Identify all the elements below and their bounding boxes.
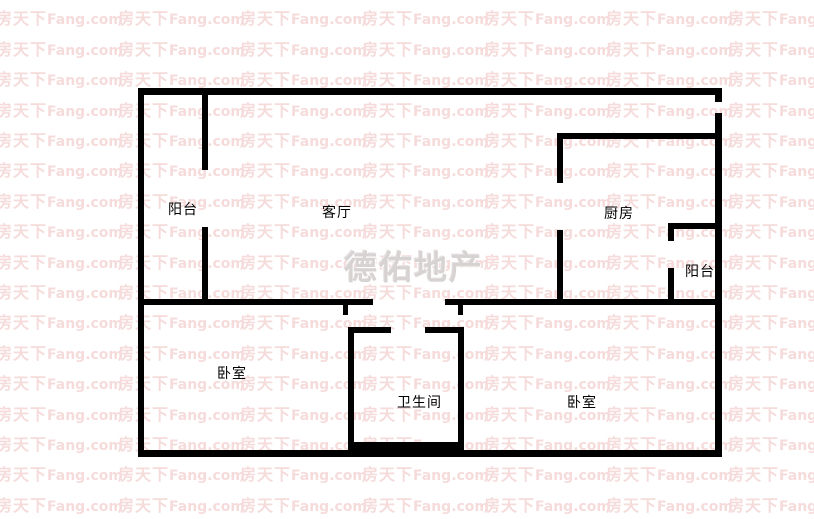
wall-middle-right (445, 299, 715, 305)
wall-balcony-right-top (668, 223, 715, 229)
watermark-text: 房天下Fang.com (118, 495, 245, 518)
watermark-text: 房天下Fang.com (728, 0, 814, 1)
watermark-text: 房天下Fang.com (484, 464, 611, 487)
watermark-text: 房天下Fang.com (606, 495, 733, 518)
watermark-text: 房天下Fang.com (0, 464, 123, 487)
watermark-text: 房天下Fang.com (728, 495, 814, 518)
watermark-text: 房天下Fang.com (728, 434, 814, 457)
watermark-text: 房天下Fang.com (0, 221, 123, 244)
door-frame-tick-right (458, 305, 463, 315)
watermark-text: 房天下Fang.com (0, 282, 123, 305)
watermark-text: 房天下Fang.com (118, 39, 245, 62)
watermark-text: 房天下Fang.com (0, 0, 123, 1)
watermark-text: 房天下Fang.com (484, 495, 611, 518)
watermark-text: 房天下Fang.com (118, 8, 245, 31)
watermark-text: 房天下Fang.com (606, 343, 733, 366)
wall-exterior-left (138, 88, 144, 457)
watermark-text: 房天下Fang.com (606, 404, 733, 427)
wall-exterior-top (138, 88, 722, 95)
watermark-text: 房天下Fang.com (240, 39, 367, 62)
door-frame-tick-left (343, 305, 348, 315)
watermark-text: 房天下Fang.com (728, 130, 814, 153)
wall-kitchen-left-lower (557, 230, 563, 305)
watermark-text: 房天下Fang.com (606, 39, 733, 62)
watermark-text: 房天下Fang.com (484, 343, 611, 366)
watermark-text: 房天下Fang.com (484, 160, 611, 183)
watermark-text: 房天下Fang.com (240, 495, 367, 518)
wall-exterior-right-upper-stub (715, 88, 722, 102)
room-label-living-room: 客厅 (322, 202, 352, 222)
watermark-text: 房天下Fang.com (728, 69, 814, 92)
watermark-text: 房天下Fang.com (362, 343, 489, 366)
watermark-text: 房天下Fang.com (0, 343, 123, 366)
watermark-text: 房天下Fang.com (362, 8, 489, 31)
room-label-kitchen: 厨房 (604, 203, 634, 223)
wall-balcony-left-divider-lower (202, 227, 208, 305)
wall-balcony-right-left-upper (668, 229, 674, 241)
wall-middle-left (144, 299, 373, 305)
watermark-text: 房天下Fang.com (240, 0, 367, 1)
watermark-text: 房天下Fang.com (606, 160, 733, 183)
watermark-text: 房天下Fang.com (728, 221, 814, 244)
watermark-text: 房天下Fang.com (484, 0, 611, 1)
wall-balcony-left-divider-upper (202, 95, 208, 170)
watermark-text: 房天下Fang.com (606, 373, 733, 396)
watermark-text: 房天下Fang.com (362, 495, 489, 518)
watermark-text: 房天下Fang.com (362, 464, 489, 487)
watermark-text: 房天下Fang.com (484, 191, 611, 214)
wall-exterior-right (715, 113, 722, 457)
watermark-text: 房天下Fang.com (0, 191, 123, 214)
room-label-balcony-left: 阳台 (168, 199, 198, 219)
wall-kitchen-top (557, 133, 717, 139)
wall-bathroom-bottom-thick (348, 442, 464, 457)
watermark-text: 房天下Fang.com (0, 8, 123, 31)
wall-bathroom-top-right (425, 327, 464, 333)
watermark-text: 房天下Fang.com (728, 160, 814, 183)
watermark-text: 房天下Fang.com (606, 0, 733, 1)
watermark-text: 房天下Fang.com (484, 221, 611, 244)
watermark-text: 房天下Fang.com (362, 100, 489, 123)
watermark-text: 房天下Fang.com (240, 8, 367, 31)
watermark-text: 房天下Fang.com (0, 434, 123, 457)
watermark-text: 房天下Fang.com (240, 130, 367, 153)
watermark-text: 房天下Fang.com (484, 312, 611, 335)
watermark-text: 房天下Fang.com (484, 8, 611, 31)
watermark-text: 房天下Fang.com (484, 39, 611, 62)
room-label-bathroom: 卫生间 (397, 392, 442, 412)
wall-bathroom-top-left (348, 327, 391, 333)
watermark-text: 房天下Fang.com (362, 0, 489, 1)
watermark-text: 房天下Fang.com (362, 39, 489, 62)
watermark-text: 房天下Fang.com (0, 495, 123, 518)
watermark-text: 房天下Fang.com (728, 8, 814, 31)
watermark-text: 房天下Fang.com (118, 0, 245, 1)
watermark-text: 房天下Fang.com (362, 160, 489, 183)
watermark-text: 房天下Fang.com (606, 8, 733, 31)
watermark-text: 房天下Fang.com (606, 312, 733, 335)
floorplan-canvas: 房天下Fang.com房天下Fang.com房天下Fang.com房天下Fang… (0, 0, 814, 519)
wall-balcony-right-left-lower (668, 268, 674, 305)
watermark-text: 房天下Fang.com (728, 39, 814, 62)
watermark-text: 房天下Fang.com (728, 252, 814, 275)
watermark-text: 房天下Fang.com (240, 464, 367, 487)
watermark-text: 房天下Fang.com (728, 191, 814, 214)
watermark-text: 房天下Fang.com (606, 100, 733, 123)
watermark-text: 房天下Fang.com (0, 404, 123, 427)
watermark-text: 房天下Fang.com (484, 252, 611, 275)
wall-bathroom-right (458, 327, 464, 450)
room-label-bedroom-right: 卧室 (567, 392, 597, 412)
watermark-text: 房天下Fang.com (484, 100, 611, 123)
wall-kitchen-left-upper (557, 133, 563, 183)
watermark-text: 房天下Fang.com (0, 130, 123, 153)
watermark-text: 房天下Fang.com (728, 282, 814, 305)
wall-bathroom-left (348, 327, 354, 450)
watermark-text: 房天下Fang.com (118, 464, 245, 487)
watermark-text: 房天下Fang.com (240, 160, 367, 183)
watermark-text: 房天下Fang.com (728, 100, 814, 123)
watermark-text: 房天下Fang.com (728, 312, 814, 335)
watermark-text: 房天下Fang.com (362, 130, 489, 153)
watermark-text: 房天下Fang.com (0, 373, 123, 396)
watermark-text: 房天下Fang.com (728, 464, 814, 487)
watermark-text: 房天下Fang.com (240, 100, 367, 123)
watermark-text: 房天下Fang.com (0, 160, 123, 183)
room-label-bedroom-left: 卧室 (217, 363, 247, 383)
watermark-text: 房天下Fang.com (362, 191, 489, 214)
watermark-text: 房天下Fang.com (728, 343, 814, 366)
brand-watermark: 德佑地产 (344, 241, 484, 289)
watermark-text: 房天下Fang.com (728, 404, 814, 427)
watermark-text: 房天下Fang.com (728, 373, 814, 396)
watermark-text: 房天下Fang.com (606, 464, 733, 487)
watermark-text: 房天下Fang.com (0, 100, 123, 123)
room-label-balcony-right: 阳台 (685, 261, 715, 281)
watermark-text: 房天下Fang.com (0, 252, 123, 275)
watermark-text: 房天下Fang.com (0, 39, 123, 62)
watermark-text: 房天下Fang.com (0, 69, 123, 92)
watermark-text: 房天下Fang.com (0, 312, 123, 335)
